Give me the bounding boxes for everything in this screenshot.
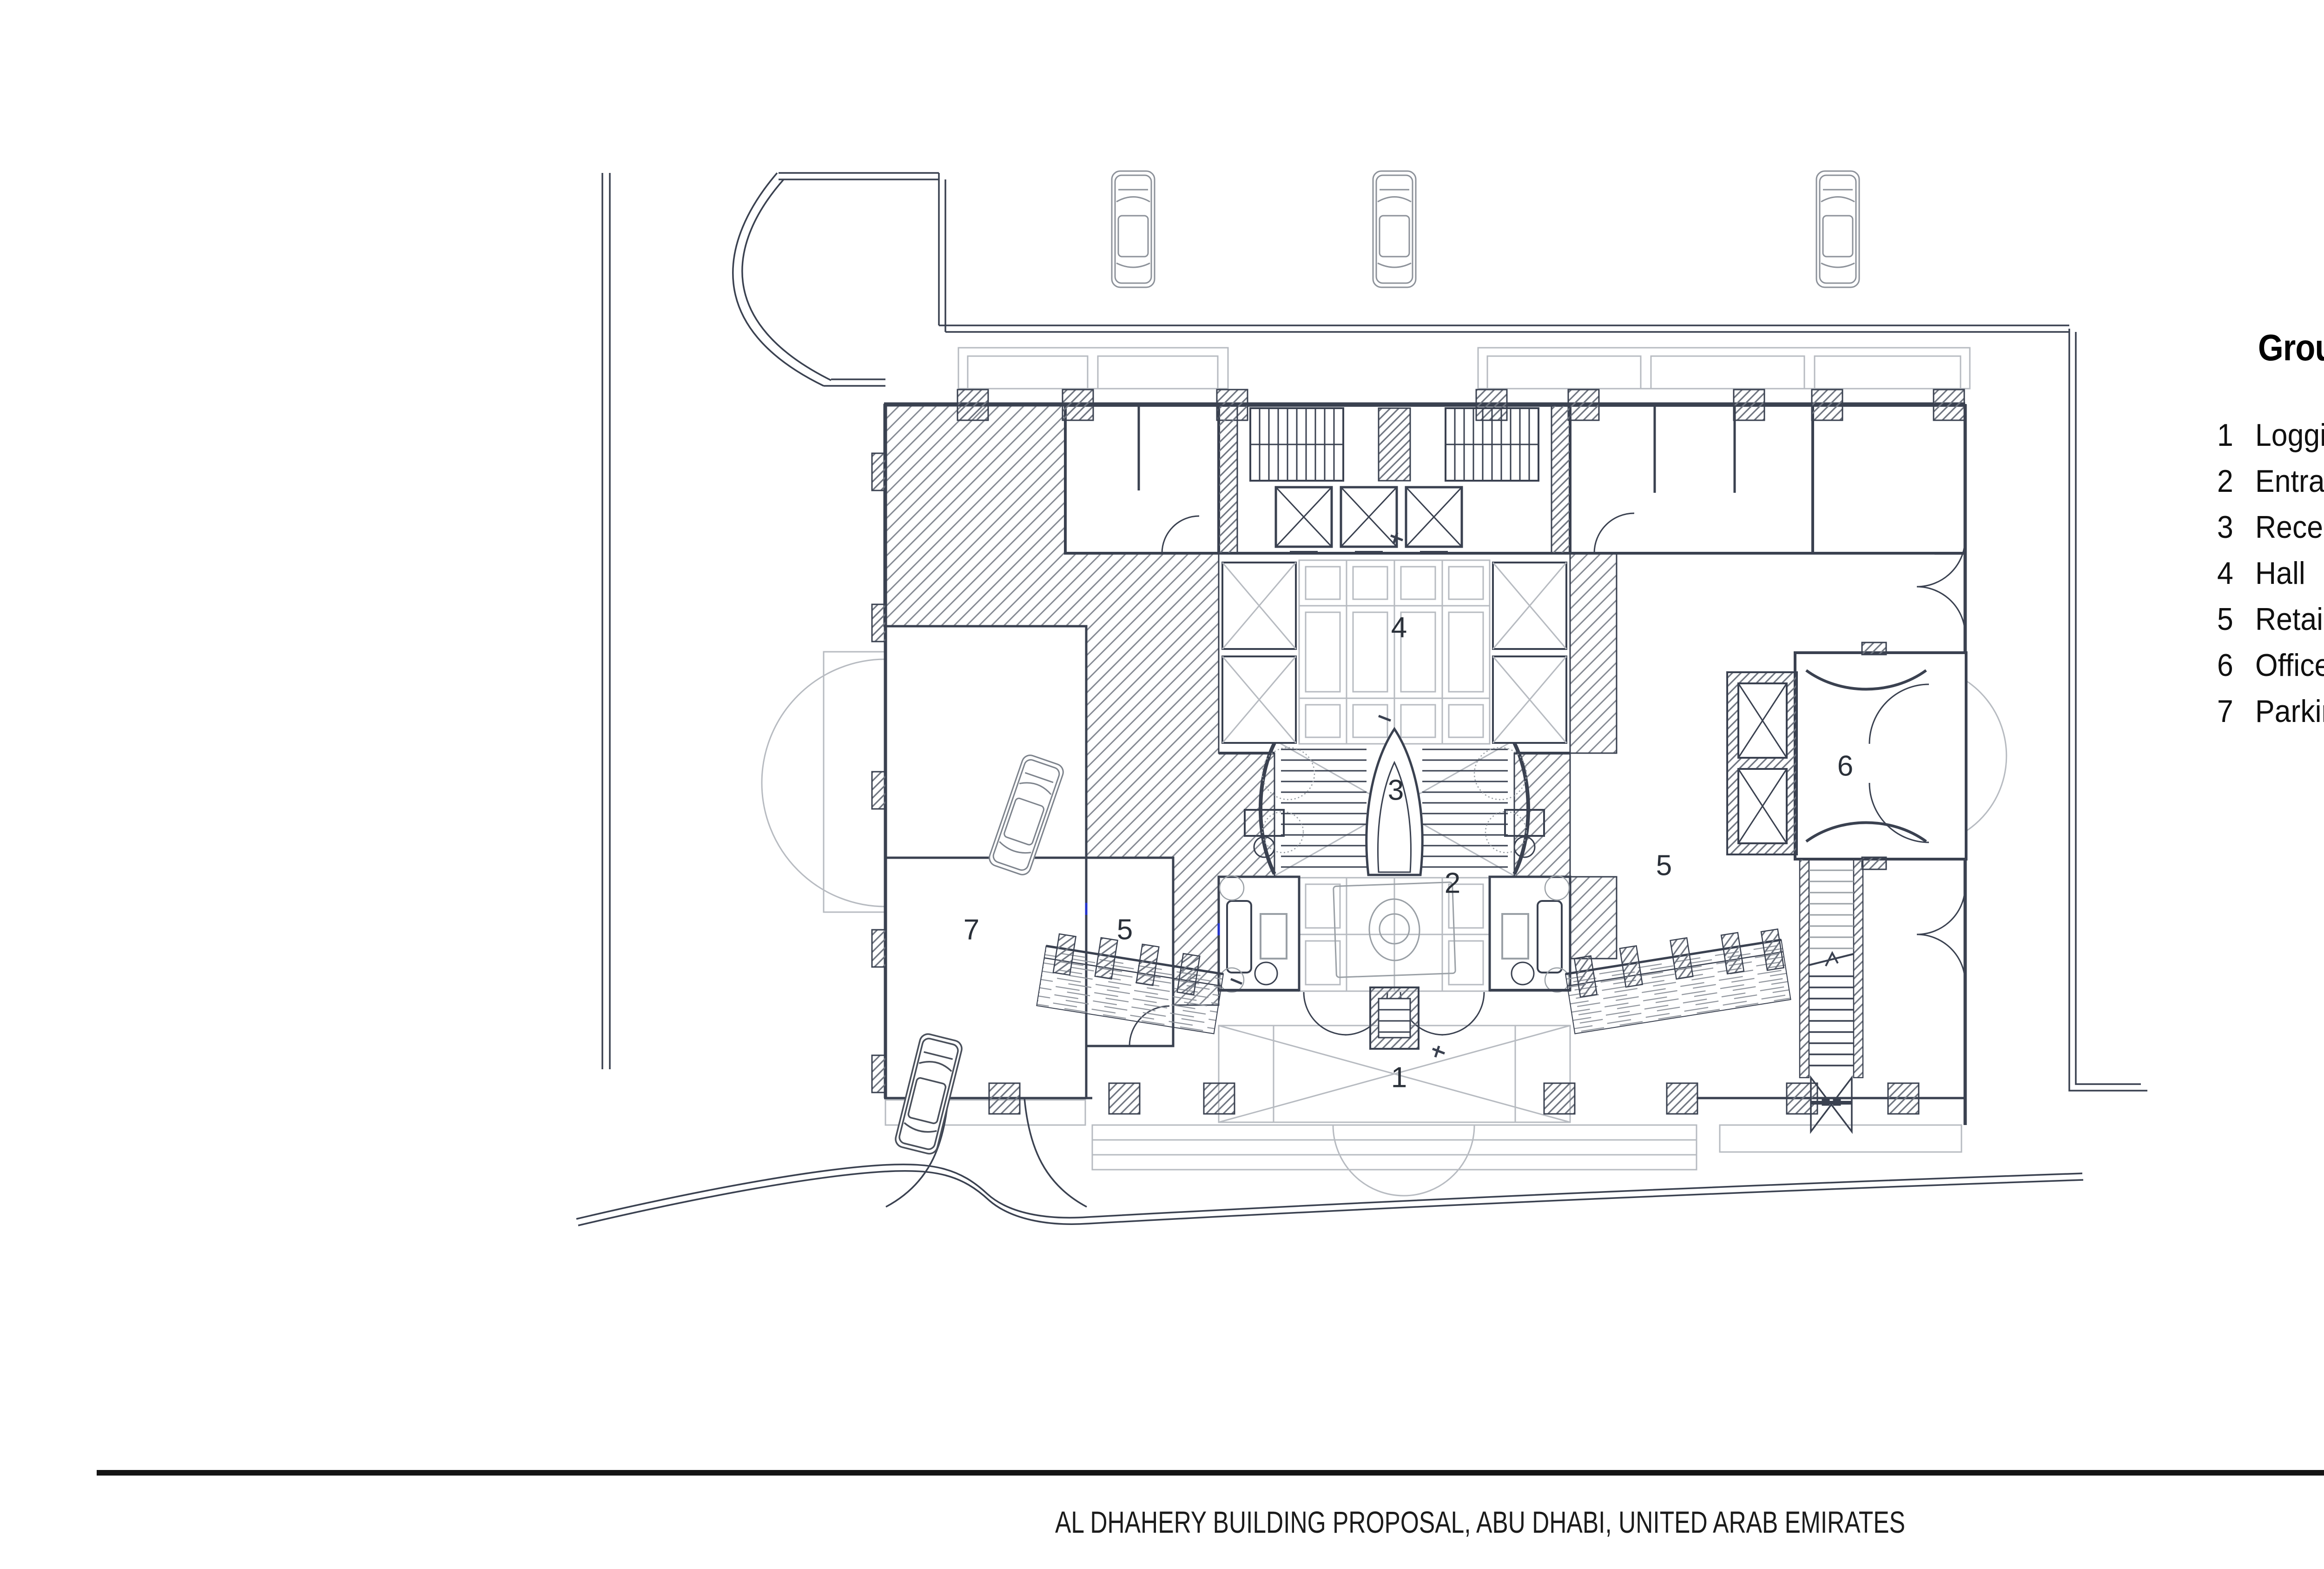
legend-item-label: Offices entrance	[2255, 647, 2324, 683]
legend-item-offices-entrance: 6 Offices entrance	[2217, 642, 2324, 688]
legend-title: Ground Floor Plan	[2258, 326, 2324, 369]
legend-item-retail: 5 Retail	[2217, 596, 2324, 642]
legend-item-label: Reception	[2255, 509, 2324, 545]
plan-label-offices-entrance: 6	[1837, 750, 1853, 783]
legend-item-label: Entrance and lounge	[2255, 463, 2324, 499]
legend-item-label: Retail	[2255, 601, 2324, 637]
plan-label-entrance-lounge: 2	[1445, 867, 1460, 900]
plan-label-hall: 4	[1391, 611, 1407, 644]
legend-items: 1 Loggia 2 Entrance and lounge 3 Recepti…	[2217, 412, 2324, 734]
legend-item-hall: 4 Hall	[2217, 550, 2324, 596]
plan-label-retail-right: 5	[1656, 849, 1672, 882]
legend-item-number: 5	[2217, 601, 2252, 637]
floor-plan-drawing	[0, 0, 2324, 1569]
legend-item-number: 6	[2217, 647, 2252, 683]
legend-item-number: 2	[2217, 463, 2252, 499]
legend-item-number: 1	[2217, 417, 2252, 453]
plan-label-reception: 3	[1388, 774, 1404, 807]
legend-item-label: Parking entrance	[2255, 693, 2324, 729]
legend-item-number: 4	[2217, 555, 2252, 591]
legend-item-number: 7	[2217, 693, 2252, 729]
legend-item-entrance-lounge: 2 Entrance and lounge	[2217, 458, 2324, 504]
sheet-caption: AL DHAHERY BUILDING PROPOSAL, ABU DHABI,…	[1055, 1504, 1780, 1540]
legend-item-reception: 3 Reception	[2217, 504, 2324, 550]
legend-item-parking-entrance: 7 Parking entrance	[2217, 688, 2324, 734]
plan-label-parking-entrance: 7	[964, 914, 979, 947]
legend-item-label: Hall	[2255, 555, 2305, 591]
footer-rule	[97, 1470, 2324, 1476]
legend-item-number: 3	[2217, 509, 2252, 545]
drawing-sheet: 1 2 3 4 5 5 6 7 Ground Floor Plan 1 Logg…	[0, 0, 2324, 1569]
legend-item-loggia: 1 Loggia	[2217, 412, 2324, 458]
plan-label-retail-left: 5	[1117, 914, 1133, 947]
legend: Ground Floor Plan 1 Loggia 2 Entrance an…	[2217, 326, 2324, 734]
legend-item-label: Loggia	[2255, 417, 2324, 453]
plan-label-loggia: 1	[1391, 1061, 1407, 1094]
